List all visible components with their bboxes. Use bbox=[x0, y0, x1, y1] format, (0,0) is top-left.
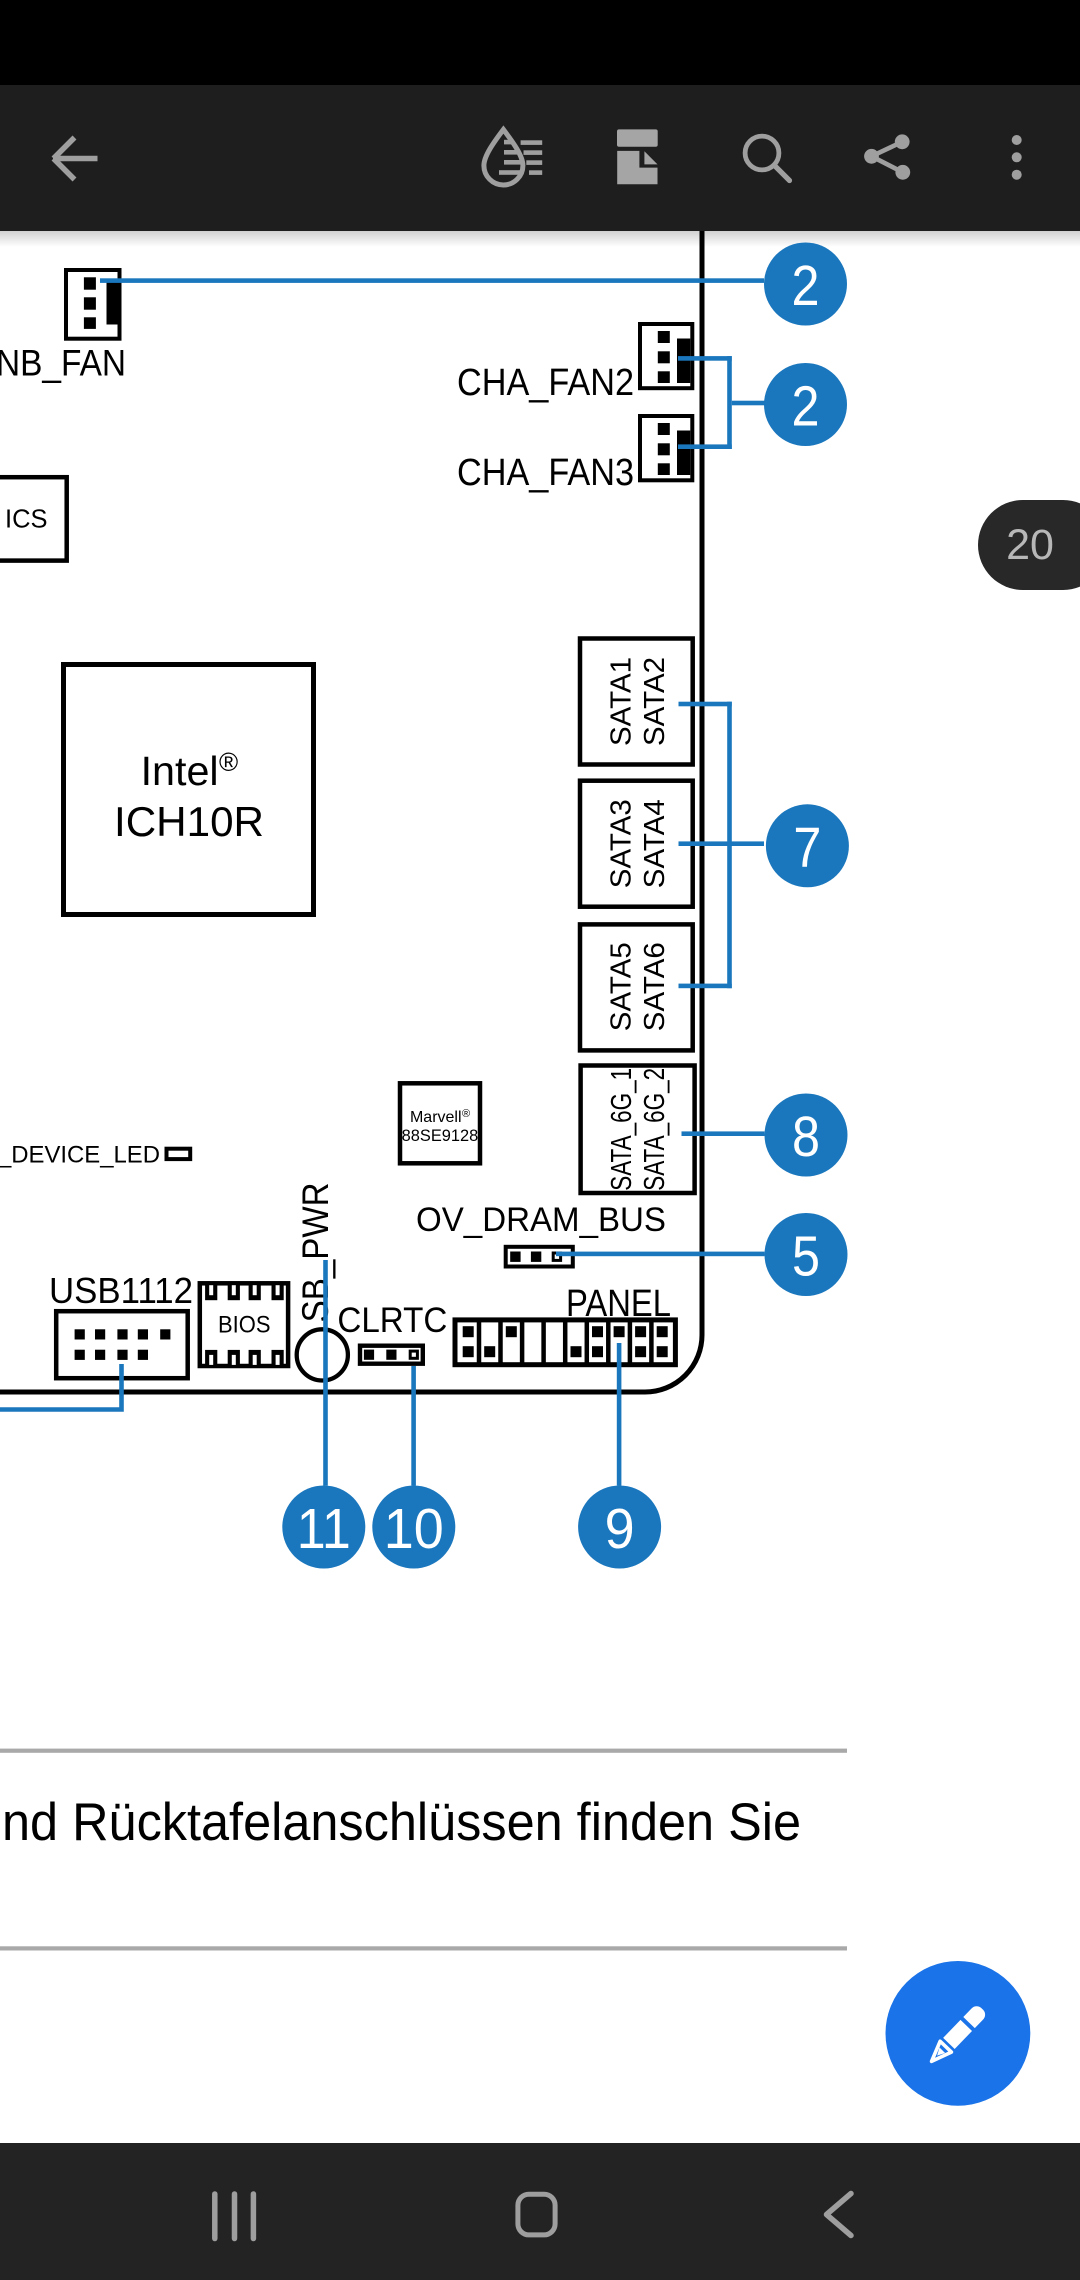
svg-text:SATA5: SATA5 bbox=[606, 942, 638, 1031]
svg-text:_DEVICE_LED: _DEVICE_LED bbox=[0, 1142, 160, 1169]
svg-text:BIOS: BIOS bbox=[218, 1312, 271, 1339]
svg-text:Marvell: Marvell bbox=[410, 1109, 462, 1126]
svg-text:11: 11 bbox=[297, 1497, 351, 1561]
svg-text:nd Rücktafelanschlüssen finden: nd Rücktafelanschlüssen finden Sie bbox=[2, 1793, 801, 1852]
svg-text:2: 2 bbox=[792, 375, 820, 439]
svg-text:9: 9 bbox=[605, 1497, 635, 1561]
svg-text:7: 7 bbox=[793, 816, 821, 880]
svg-text:SATA6: SATA6 bbox=[639, 942, 671, 1031]
svg-text:SATA4: SATA4 bbox=[639, 799, 671, 888]
svg-text:5: 5 bbox=[792, 1225, 820, 1289]
svg-text:USB1112: USB1112 bbox=[49, 1270, 193, 1311]
svg-text:SATA2: SATA2 bbox=[639, 657, 671, 746]
svg-text:SB_PWR: SB_PWR bbox=[295, 1182, 336, 1322]
svg-text:88SE9128: 88SE9128 bbox=[402, 1127, 479, 1145]
svg-text:8: 8 bbox=[792, 1105, 820, 1169]
svg-text:20: 20 bbox=[1006, 521, 1054, 569]
svg-text:ICH10R: ICH10R bbox=[114, 798, 264, 845]
svg-text:®: ® bbox=[462, 1108, 470, 1120]
svg-text:SATA1: SATA1 bbox=[606, 657, 638, 746]
svg-text:SATA3: SATA3 bbox=[606, 799, 638, 888]
svg-text:SATA_6G_2: SATA_6G_2 bbox=[639, 1068, 671, 1191]
svg-text:ICS: ICS bbox=[5, 504, 48, 534]
svg-text:CLRTC: CLRTC bbox=[337, 1301, 447, 1340]
svg-text:OV_DRAM_BUS: OV_DRAM_BUS bbox=[416, 1201, 666, 1239]
svg-text:NB_FAN: NB_FAN bbox=[0, 343, 126, 384]
svg-text:SATA_6G_1: SATA_6G_1 bbox=[606, 1068, 638, 1191]
svg-text:®: ® bbox=[219, 747, 238, 777]
svg-text:Intel: Intel bbox=[141, 748, 219, 794]
svg-text:CHA_FAN3: CHA_FAN3 bbox=[457, 452, 634, 494]
svg-text:2: 2 bbox=[792, 254, 820, 318]
svg-text:CHA_FAN2: CHA_FAN2 bbox=[457, 362, 634, 404]
svg-text:10: 10 bbox=[384, 1497, 444, 1561]
